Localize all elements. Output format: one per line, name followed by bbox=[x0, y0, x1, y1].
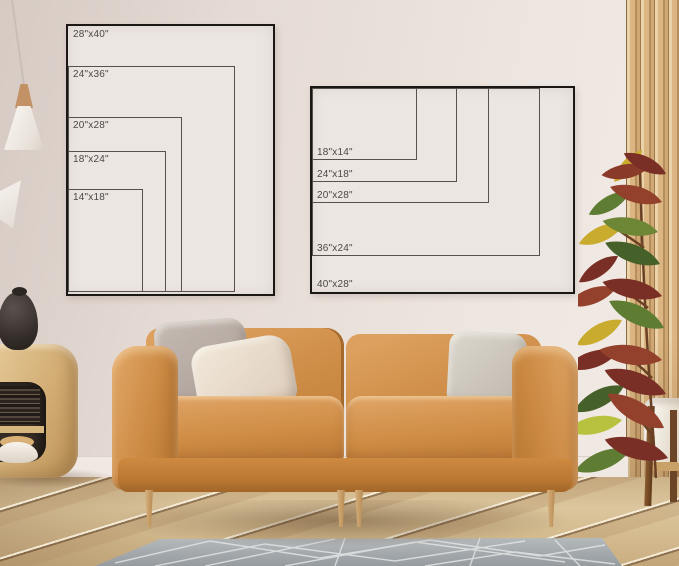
size-label-40x28: 40"x28" bbox=[317, 279, 353, 290]
size-label-24x18: 24"x18" bbox=[317, 169, 353, 180]
size-label-28x40: 28"x40" bbox=[73, 29, 109, 40]
plant-stand-bar bbox=[650, 462, 679, 471]
white-bowl bbox=[0, 442, 38, 463]
vase-lid bbox=[12, 287, 27, 296]
size-chart-portrait: 28"x40" 24"x36" 20"x28" 18"x24" 14"x18" bbox=[66, 24, 275, 296]
size-label-14x18: 14"x18" bbox=[73, 192, 109, 203]
stacked-books bbox=[0, 386, 40, 424]
size-label-20x28-landscape: 20"x28" bbox=[317, 190, 353, 201]
size-label-18x24: 18"x24" bbox=[73, 154, 109, 165]
pendant-lamp bbox=[4, 84, 44, 148]
side-table bbox=[0, 344, 78, 478]
size-chart-landscape: 40"x28" 36"x24" 20"x28" 24"x18" 18"x14" bbox=[310, 86, 575, 294]
shelf-divider bbox=[0, 426, 44, 433]
size-rect-18x14: 18"x14" bbox=[312, 88, 417, 160]
plant-stand-leg bbox=[670, 410, 677, 502]
pendant-wood-top bbox=[15, 84, 33, 108]
size-label-36x24: 36"x24" bbox=[317, 243, 353, 254]
size-label-20x28: 20"x28" bbox=[73, 120, 109, 131]
table-shelf-cavity bbox=[0, 382, 46, 462]
size-rect-14x18: 14"x18" bbox=[68, 189, 143, 292]
sofa-base bbox=[118, 458, 572, 492]
pendant-shade bbox=[4, 106, 44, 150]
size-label-18x14: 18"x14" bbox=[317, 147, 353, 158]
living-room-scene: 28"x40" 24"x36" 20"x28" 18"x24" 14"x18" … bbox=[0, 0, 679, 566]
size-label-24x36: 24"x36" bbox=[73, 69, 109, 80]
